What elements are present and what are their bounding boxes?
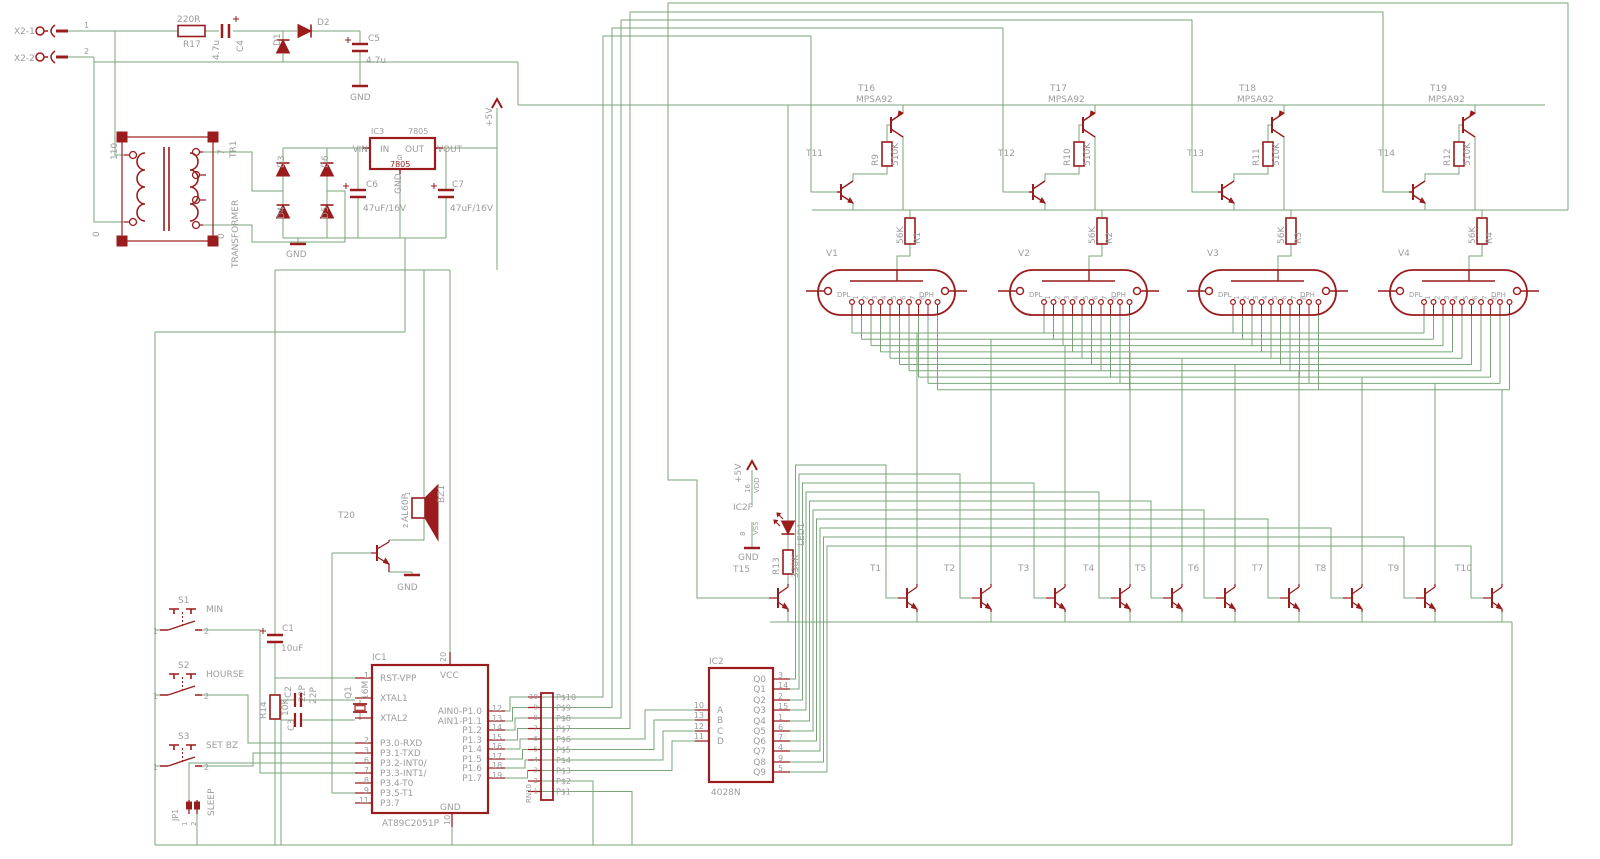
transistor-t6 bbox=[1216, 584, 1235, 612]
tube-dpl-1: DPL bbox=[1029, 291, 1043, 299]
ic1-pin-num-0: 1 bbox=[364, 671, 369, 680]
schematic-canvas: X2-1X2-212220RR174.7uC4D1D2C54.7uGNDTR1T… bbox=[0, 0, 1600, 859]
bz1-part: AL60P bbox=[401, 493, 411, 522]
transistor-t8 bbox=[1343, 584, 1362, 612]
rn10-pin-label-3: P$7 bbox=[556, 725, 571, 734]
ic2-out-label-9: Q9 bbox=[753, 768, 766, 778]
rn10-pin-label-8: P$2 bbox=[556, 777, 571, 786]
driver-name-0: T16 bbox=[857, 84, 875, 94]
switch-name-0: S1 bbox=[178, 596, 189, 606]
driver-tmid-1: T12 bbox=[997, 149, 1015, 159]
ic1-pin-label-4: P3.1-TXD bbox=[380, 749, 421, 759]
tube-digit-3-0: 1 bbox=[1424, 296, 1432, 300]
rn10-pin-label-6: P$4 bbox=[556, 756, 571, 765]
x2-2-label: X2-2 bbox=[14, 54, 35, 64]
plus5v-main: +5V bbox=[485, 107, 495, 127]
transistor-t3 bbox=[1046, 584, 1065, 612]
ic1-rpin-num-1: 13 bbox=[492, 714, 502, 723]
bz1-pin2: 2 bbox=[402, 524, 410, 528]
vdd-label: VDD bbox=[753, 477, 761, 493]
tube-digit-0-3: 4 bbox=[881, 295, 889, 300]
t20-name: T20 bbox=[337, 511, 355, 521]
transistor-t1 bbox=[898, 584, 917, 612]
switch-s2 bbox=[160, 674, 202, 695]
driver-name-1: T17 bbox=[1049, 84, 1067, 94]
ic2-in-label-3: D bbox=[717, 737, 724, 747]
ic2-out-label-2: Q2 bbox=[753, 696, 766, 706]
d1-name: D1 bbox=[273, 33, 283, 46]
x2-1-connector bbox=[36, 25, 68, 37]
tube-digit-2-0: 1 bbox=[1233, 296, 1241, 300]
ic2-out-num-3: 15 bbox=[778, 702, 788, 711]
switch-pin1-0: 1 bbox=[153, 627, 158, 636]
ic1-rpin-label-4: P1.4 bbox=[462, 745, 482, 755]
vcc-label: VCC bbox=[440, 671, 459, 681]
d3-name: D3 bbox=[277, 155, 287, 168]
reg-gnd: GND bbox=[394, 173, 404, 194]
ic2-out-num-5: 6 bbox=[778, 723, 783, 732]
transistor-t2 bbox=[972, 584, 991, 612]
switch-name-2: S3 bbox=[178, 732, 189, 742]
r13-value: 330K bbox=[791, 554, 801, 578]
ic1-part: AT89C2051P bbox=[382, 819, 440, 829]
digit-transistor-label-2: T3 bbox=[1017, 564, 1029, 574]
tube-digit-3-2: 3 bbox=[1443, 296, 1451, 300]
ic1-pin-num-7: 8 bbox=[364, 776, 369, 785]
switch-func-0: MIN bbox=[206, 605, 223, 615]
transistor-t20 bbox=[371, 540, 389, 572]
bz1-pin1: 1 bbox=[404, 492, 412, 496]
rn10-pin-num-2: 8 bbox=[534, 714, 538, 722]
ic2-out-num-1: 14 bbox=[778, 681, 788, 690]
rn10-pin-num-6: 4 bbox=[534, 756, 539, 764]
jumper-jp1 bbox=[187, 800, 200, 814]
rn10-pin-num-5: 5 bbox=[534, 746, 538, 754]
ic1-rpin-label-2: P1.2 bbox=[462, 726, 482, 736]
tube-digit-1-0: 1 bbox=[1044, 296, 1052, 300]
tube-digit-1-1: 2 bbox=[1054, 296, 1062, 300]
tube-name-0: V1 bbox=[826, 249, 838, 259]
ic1-rpin-num-5: 17 bbox=[492, 752, 502, 761]
switch-name-1: S2 bbox=[178, 661, 189, 671]
ic2-out-label-8: Q8 bbox=[753, 758, 766, 768]
driver-rtop-value-3: 510K bbox=[1463, 142, 1473, 166]
ic2-out-label-6: Q6 bbox=[753, 737, 766, 747]
c2-name: C2 bbox=[284, 686, 294, 698]
tube-digit-0-0: 1 bbox=[852, 296, 860, 300]
c6-value: 47uF/16V bbox=[363, 204, 407, 214]
q1-name: Q1 bbox=[344, 686, 354, 699]
c2-value: 22P bbox=[298, 685, 308, 702]
ic2-out-num-0: 3 bbox=[778, 671, 783, 680]
driver-rtop-value-1: 510K bbox=[1083, 142, 1093, 166]
vss-label: VSS bbox=[752, 521, 760, 535]
ic2-out-num-7: 4 bbox=[778, 743, 783, 752]
transistor-t7 bbox=[1280, 584, 1299, 612]
rn10-pin-num-9: 1 bbox=[534, 788, 538, 796]
ic2-out-label-5: Q5 bbox=[753, 727, 766, 737]
driver-name-2: T18 bbox=[1238, 84, 1256, 94]
tube-digit-0-4: 5 bbox=[890, 296, 898, 300]
jp1-func: SLEEP bbox=[207, 788, 217, 816]
tube-digit-2-4: 5 bbox=[1271, 296, 1279, 300]
driver-rtop-1: R10 bbox=[1063, 148, 1073, 166]
gnd-label-1: GND bbox=[350, 93, 371, 103]
ic2-in-num-2: 12 bbox=[694, 722, 704, 731]
d4-name: D4 bbox=[277, 206, 287, 219]
cap-c5 bbox=[345, 37, 368, 51]
bz1-name: BZ1 bbox=[437, 485, 447, 503]
tube-digit-1-5: 6 bbox=[1092, 295, 1100, 300]
tr1-name: TR1 bbox=[229, 141, 239, 159]
tube-digit-1-6: 7 bbox=[1101, 296, 1109, 300]
rn10-pin-label-9: P$1 bbox=[556, 788, 571, 797]
ic1-rpin-num-2: 14 bbox=[492, 723, 502, 732]
ic1-pin-num-5: 6 bbox=[364, 756, 369, 765]
ic1-gnd-num: 10 bbox=[443, 815, 452, 825]
cap-c4 bbox=[222, 16, 239, 38]
switch-func-1: HOURSE bbox=[206, 670, 244, 680]
tube-digit-3-5: 6 bbox=[1472, 295, 1480, 300]
ic2-out-label-4: Q4 bbox=[753, 717, 766, 727]
driver-rbot-0: R1 bbox=[913, 232, 923, 244]
digit-transistor-label-9: T10 bbox=[1454, 564, 1472, 574]
ic1-pin-label-0: RST-VPP bbox=[380, 674, 417, 684]
driver-part-3: MPSA92 bbox=[1428, 95, 1465, 105]
ic1-pin-label-8: P3.5-T1 bbox=[380, 789, 413, 799]
ic1-pin-num-3: 2 bbox=[364, 736, 369, 745]
ic1-rpin-num-4: 16 bbox=[492, 742, 502, 751]
rn10-network bbox=[528, 693, 553, 800]
tube-name-3: V4 bbox=[1398, 249, 1410, 259]
tube-dph-1: DPH bbox=[1111, 291, 1126, 299]
gnd-label-3: GND bbox=[397, 583, 418, 593]
crystal-q1 bbox=[353, 704, 367, 712]
tube-digit-3-1: 2 bbox=[1434, 296, 1442, 300]
led-led1 bbox=[774, 513, 795, 534]
c4-value: 4.7u bbox=[212, 40, 222, 60]
jp1-name: JP1 bbox=[171, 809, 180, 822]
jp1-pin1: 1 bbox=[181, 822, 189, 826]
driver-rbot-value-3: 56K bbox=[1468, 226, 1478, 244]
rn10-pin-label-1: P$9 bbox=[556, 704, 571, 713]
driver-part-1: MPSA92 bbox=[1048, 95, 1085, 105]
switch-pin1-2: 1 bbox=[153, 763, 158, 772]
switch-pin2-0: 2 bbox=[204, 627, 209, 636]
wires bbox=[68, 3, 1568, 845]
transistor-t5 bbox=[1163, 584, 1182, 612]
driver-tmid-0: T11 bbox=[805, 149, 823, 159]
c6-name: C6 bbox=[366, 180, 378, 190]
plus5v-led: +5V bbox=[734, 463, 744, 483]
transistor-t4 bbox=[1111, 584, 1130, 612]
ic1-rpin-num-6: 18 bbox=[492, 761, 502, 770]
buzzer-bz1 bbox=[412, 485, 438, 540]
ic1-pin-label-6: P3.3-INT1/ bbox=[380, 769, 428, 779]
gnd-label-4: GND bbox=[738, 553, 759, 563]
tube-name-2: V3 bbox=[1207, 249, 1219, 259]
c7-value: 47uF/16V bbox=[450, 204, 494, 214]
driver-rbot-3: R4 bbox=[1485, 232, 1495, 244]
ic2-in-label-2: C bbox=[717, 727, 723, 737]
transistor-t9 bbox=[1416, 584, 1435, 612]
tube-digit-1-2: 3 bbox=[1063, 296, 1071, 300]
c5-value: 4.7u bbox=[366, 56, 386, 66]
x2-1-pin: 1 bbox=[84, 21, 89, 30]
ic1-pin-label-9: P3.7 bbox=[380, 799, 400, 809]
tube-dph-2: DPH bbox=[1300, 291, 1315, 299]
sec-7: 7 bbox=[217, 149, 227, 155]
digit-transistor-label-6: T7 bbox=[1251, 564, 1263, 574]
rn10-pin-num-1: 9 bbox=[534, 704, 538, 712]
switch-func-2: SET BZ bbox=[206, 741, 238, 751]
tube-digit-0-5: 6 bbox=[900, 295, 908, 300]
tube-digit-0-1: 2 bbox=[862, 296, 870, 300]
ic1-pin-num-6: 7 bbox=[364, 766, 369, 775]
ic2-in-label-0: A bbox=[717, 706, 724, 716]
reg-value: 7805 bbox=[390, 160, 410, 169]
gnd-label-2: GND bbox=[286, 250, 307, 260]
tube-digit-3-4: 5 bbox=[1462, 296, 1470, 300]
tube-digit-2-5: 6 bbox=[1281, 295, 1289, 300]
ic1-rpin-label-7: P1.7 bbox=[462, 774, 482, 784]
cap-c1 bbox=[260, 628, 283, 642]
x2-1-label: X2-1 bbox=[14, 27, 35, 37]
rn10-pin-num-3: 7 bbox=[534, 725, 538, 733]
ic2-in-num-1: 13 bbox=[694, 711, 704, 720]
ic1-mcu bbox=[355, 652, 505, 827]
c1-name: C1 bbox=[282, 624, 294, 634]
ic1-gnd-label: GND bbox=[440, 803, 461, 813]
tube-dpl-3: DPL bbox=[1409, 291, 1423, 299]
reg-out: OUT bbox=[405, 145, 425, 155]
ic3-part: 7805 bbox=[408, 127, 428, 136]
tube-digit-3-3: 4 bbox=[1453, 295, 1461, 300]
wire-led-column bbox=[752, 105, 788, 584]
wire-t15-base bbox=[668, 3, 769, 598]
ic2-out-label-1: Q1 bbox=[753, 685, 766, 695]
prim-0: 0 bbox=[92, 231, 102, 237]
tube-name-1: V2 bbox=[1018, 249, 1030, 259]
x2-2-connector bbox=[36, 51, 68, 63]
switch-pin2-2: 2 bbox=[204, 763, 209, 772]
d6-name: D6 bbox=[321, 155, 331, 168]
c7-name: C7 bbox=[452, 180, 464, 190]
ic1-pin-label-5: P3.2-INT0/ bbox=[380, 759, 428, 769]
driver-rtop-2: R11 bbox=[1252, 148, 1262, 166]
digit-transistor-label-7: T8 bbox=[1314, 564, 1326, 574]
ic2-out-num-2: 2 bbox=[778, 692, 783, 701]
ic1-pin-label-3: P3.0-RXD bbox=[380, 739, 422, 749]
tube-digit-2-3: 4 bbox=[1262, 295, 1270, 300]
ic2-name: IC2 bbox=[709, 657, 724, 667]
ic2-decoder bbox=[695, 668, 790, 782]
r17-name: R17 bbox=[183, 40, 201, 50]
transformer-tr1 bbox=[117, 132, 218, 246]
tube-digit-0-2: 3 bbox=[871, 296, 879, 300]
diode-d2 bbox=[298, 25, 311, 38]
c4-name: C4 bbox=[236, 40, 246, 52]
ic1-pin-label-7: P3.4-T0 bbox=[380, 779, 414, 789]
driver-rbot-value-0: 56K bbox=[896, 226, 906, 244]
tube-digit-3-6: 7 bbox=[1481, 296, 1489, 300]
driver-rtop-value-0: 510K bbox=[891, 142, 901, 166]
digit-transistor-label-3: T4 bbox=[1082, 564, 1094, 574]
schematic-page: X2-1X2-212220RR174.7uC4D1D2C54.7uGNDTR1T… bbox=[0, 0, 1600, 859]
q1-value: 16M bbox=[361, 681, 371, 700]
transistor-t15 bbox=[769, 584, 788, 612]
plus5v-arrow bbox=[492, 99, 502, 108]
labels: X2-1X2-212220RR174.7uC4D1D2C54.7uGNDTR1T… bbox=[14, 15, 1506, 829]
ic1-pin-num-8: 9 bbox=[364, 786, 369, 795]
driver-part-2: MPSA92 bbox=[1237, 95, 1274, 105]
driver-rbot-1: R2 bbox=[1105, 232, 1115, 244]
transformer-label: TRANSFORMER bbox=[231, 200, 241, 269]
digit-transistor-label-8: T9 bbox=[1387, 564, 1399, 574]
ic1-pin-label-2: XTAL2 bbox=[380, 714, 408, 724]
driver-name-3: T19 bbox=[1429, 84, 1447, 94]
vss-pin-num: 8 bbox=[739, 532, 747, 536]
tube-dph-0: DPH bbox=[919, 291, 934, 299]
ic3-name: IC3 bbox=[371, 127, 384, 136]
r14-value: 10K bbox=[281, 698, 291, 716]
ic2-out-num-4: 1 bbox=[778, 713, 783, 722]
tube-digit-2-1: 2 bbox=[1243, 296, 1251, 300]
driver-rtop-value-2: 510K bbox=[1272, 142, 1282, 166]
cap-c7 bbox=[431, 183, 454, 197]
ic1-pin-num-9: 11 bbox=[359, 796, 369, 805]
switch-pin1-1: 1 bbox=[153, 692, 158, 701]
driver-tmid-3: T14 bbox=[1377, 149, 1395, 159]
driver-rtop-0: R9 bbox=[871, 154, 881, 166]
ic1-rpin-label-6: P1.6 bbox=[462, 764, 482, 774]
rn10-pin-label-7: P$3 bbox=[556, 767, 571, 776]
driver-rtop-3: R12 bbox=[1443, 148, 1453, 166]
prim-110: 110 bbox=[110, 143, 120, 160]
rn10-pin-num-0: 10 bbox=[529, 693, 538, 701]
ic2-out-num-8: 9 bbox=[778, 754, 783, 763]
tube-digit-2-6: 7 bbox=[1290, 296, 1298, 300]
digit-transistor-label-0: T1 bbox=[869, 564, 881, 574]
wire-signal-mesh bbox=[505, 315, 1510, 778]
ic2-part: 4028N bbox=[711, 788, 741, 798]
ic2-out-num-9: 5 bbox=[778, 764, 783, 773]
ic2-out-num-6: 7 bbox=[778, 733, 783, 742]
wire-buzzer bbox=[332, 270, 424, 793]
rn10-pin-label-2: P$8 bbox=[556, 714, 571, 723]
vout-label: VOUT bbox=[437, 145, 463, 155]
transistor-t10 bbox=[1483, 584, 1502, 612]
driver-part-0: MPSA92 bbox=[856, 95, 893, 105]
r13-name: R13 bbox=[772, 557, 782, 575]
tube-dph-3: DPH bbox=[1491, 291, 1506, 299]
vin-label: VIN bbox=[352, 145, 368, 155]
ic1-rpin-num-7: 19 bbox=[492, 771, 502, 780]
tube-digit-0-6: 7 bbox=[909, 296, 917, 300]
r17-value: 220R bbox=[177, 15, 200, 25]
driver-rbot-value-2: 56K bbox=[1277, 226, 1287, 244]
x2-2-pin: 2 bbox=[84, 47, 89, 56]
wire-mcu-bus bbox=[541, 12, 1409, 845]
wire-gnd-rails bbox=[155, 238, 1512, 845]
wire-switch-area bbox=[155, 270, 355, 845]
driver-rbot-2: R3 bbox=[1294, 232, 1304, 244]
c1-value: 10uF bbox=[281, 644, 303, 654]
c3-value: 22P bbox=[309, 687, 319, 704]
ic2p-vdd-arrow bbox=[747, 461, 757, 470]
switch-pin2-1: 2 bbox=[204, 692, 209, 701]
ic2-out-label-0: Q0 bbox=[753, 675, 766, 685]
d2-name: D2 bbox=[317, 18, 330, 28]
vdd-pin-num: 16 bbox=[744, 484, 752, 493]
rn10-pin-num-4: 6 bbox=[534, 735, 539, 743]
tube-digit-1-4: 5 bbox=[1082, 296, 1090, 300]
digit-transistor-label-1: T2 bbox=[943, 564, 955, 574]
driver-tmid-2: T13 bbox=[1186, 149, 1204, 159]
ic2-in-label-1: B bbox=[717, 716, 723, 726]
digit-transistor-label-5: T6 bbox=[1187, 564, 1199, 574]
ic1-name: IC1 bbox=[372, 653, 387, 663]
reg-in: IN bbox=[380, 145, 389, 155]
ic2-out-label-3: Q3 bbox=[753, 706, 766, 716]
driver-rbot-value-1: 56K bbox=[1088, 226, 1098, 244]
ic1-rpin-num-3: 15 bbox=[492, 733, 502, 742]
switch-s1 bbox=[160, 609, 202, 630]
ic2-in-num-3: 11 bbox=[694, 732, 704, 741]
t15-name: T15 bbox=[732, 565, 750, 575]
wire-power-top bbox=[68, 31, 518, 222]
ic1-rpin-num-0: 12 bbox=[492, 704, 502, 713]
sec-0: 0 bbox=[217, 233, 227, 239]
c5-name: C5 bbox=[368, 34, 380, 44]
tube-dpl-2: DPL bbox=[1218, 291, 1232, 299]
tube-dpl-0: DPL bbox=[837, 291, 851, 299]
ic2p-name: IC2P bbox=[733, 503, 754, 513]
rn10-name: RN10 bbox=[525, 784, 533, 803]
rn10-pin-label-0: P$10 bbox=[556, 693, 576, 702]
resistor-r17 bbox=[178, 26, 205, 37]
ic2-in-num-0: 10 bbox=[694, 701, 704, 710]
d5-name: D5 bbox=[321, 206, 331, 219]
cap-c6 bbox=[343, 183, 366, 197]
ic1-pin-label-1: XTAL1 bbox=[380, 694, 408, 704]
digit-transistor-label-4: T5 bbox=[1134, 564, 1146, 574]
tube-digit-1-3: 4 bbox=[1073, 295, 1081, 300]
rn10-pin-label-4: P$6 bbox=[556, 735, 571, 744]
tube-digit-2-2: 3 bbox=[1252, 296, 1260, 300]
resistor-r14 bbox=[270, 695, 280, 719]
r14-name: R14 bbox=[259, 701, 269, 719]
jp1-pin2: 2 bbox=[190, 822, 198, 826]
led1-name: LED1 bbox=[797, 523, 807, 546]
ic1-pin-num-4: 3 bbox=[364, 746, 369, 755]
ic1-rpin-label-0: AIN0-P1.0 bbox=[438, 707, 483, 717]
vcc-num: 20 bbox=[439, 652, 448, 662]
c3-name: C3 bbox=[287, 719, 297, 731]
rn10-pin-num-8: 2 bbox=[534, 777, 538, 785]
rn10-pin-label-5: P$5 bbox=[556, 746, 571, 755]
ic2-out-label-7: Q7 bbox=[753, 747, 766, 757]
rn10-pin-num-7: 3 bbox=[534, 767, 538, 775]
